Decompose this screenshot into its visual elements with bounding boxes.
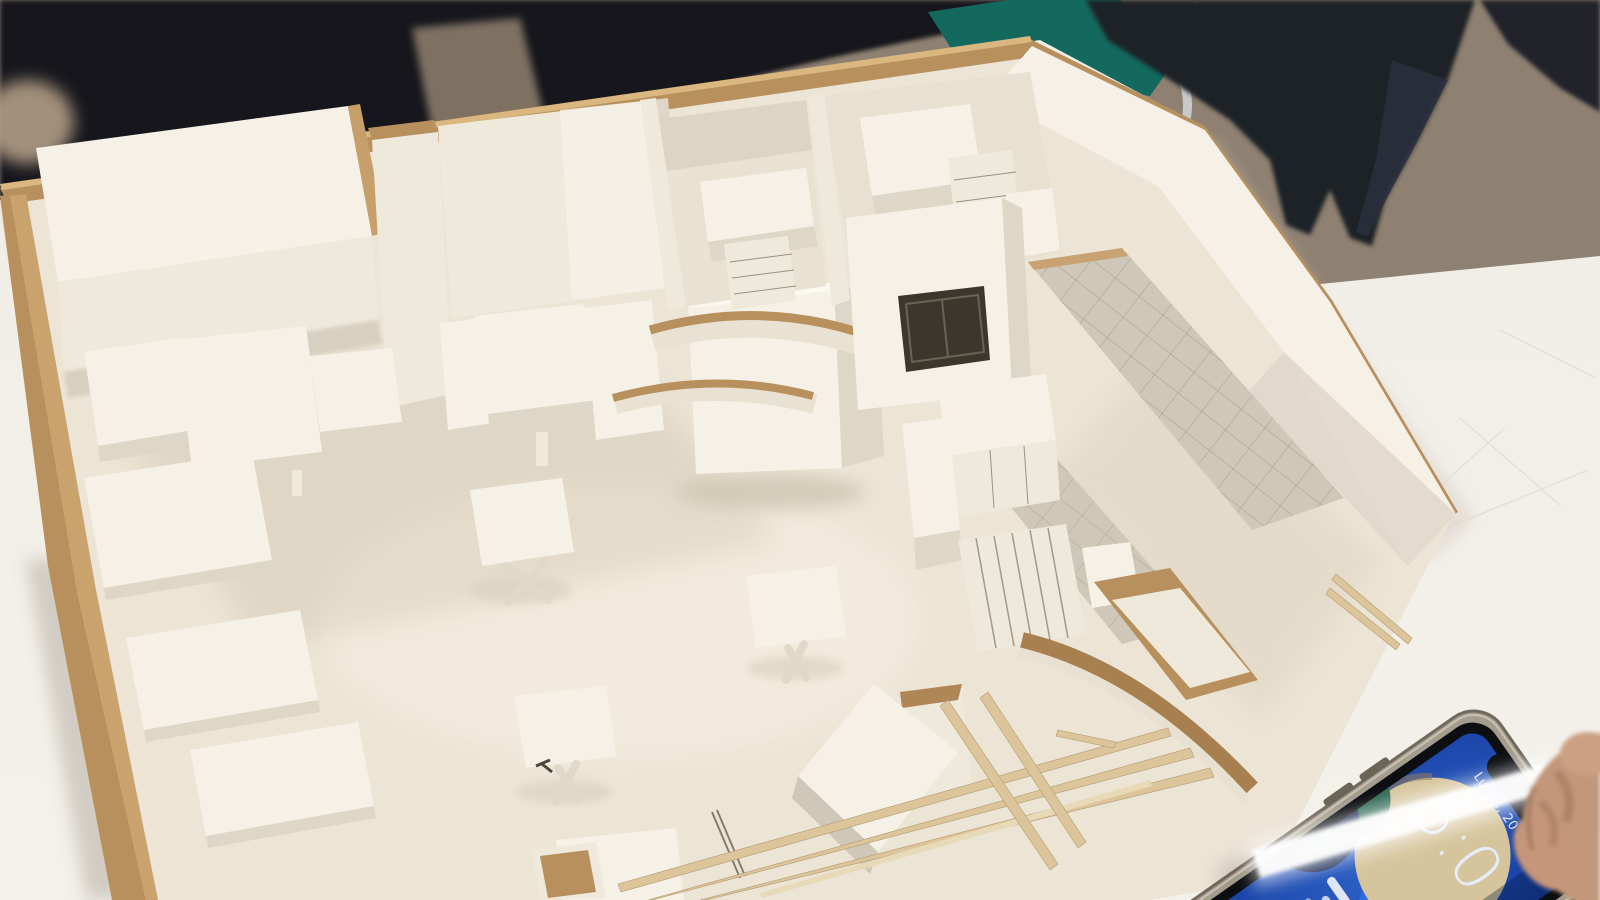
photo-architectural-model-scene: Lunes, 20 de 5:0 [0, 0, 1600, 900]
bench [584, 300, 664, 440]
open-box [532, 842, 606, 900]
large-table [176, 326, 322, 468]
meeting-room [438, 98, 682, 466]
bench [310, 348, 402, 432]
table [474, 304, 598, 414]
small-table [746, 566, 846, 648]
window-volume [846, 198, 1032, 410]
room-a [640, 98, 826, 310]
bench [84, 338, 194, 446]
small-table [514, 686, 616, 768]
room-a-cabinet [724, 236, 796, 310]
small-table [470, 478, 574, 566]
